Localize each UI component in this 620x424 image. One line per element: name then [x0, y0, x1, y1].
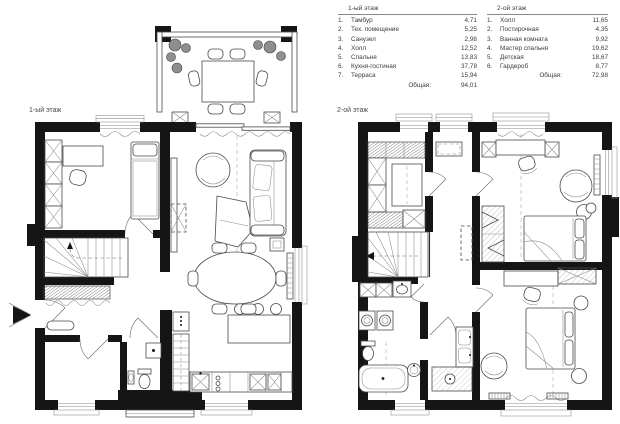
master-bedroom — [482, 134, 600, 262]
legend-row: 7.Терраса15,94 — [338, 71, 477, 80]
laundry-sink — [393, 281, 411, 297]
wall-sink — [128, 371, 134, 384]
bedroom-window — [96, 116, 144, 129]
kitchen-window — [201, 404, 252, 416]
kitchen — [173, 304, 292, 393]
terrace — [155, 26, 297, 123]
desk-chair — [517, 155, 537, 176]
curtain — [100, 132, 140, 137]
desk-console — [496, 140, 545, 155]
armchair — [481, 353, 507, 379]
radiator — [287, 253, 293, 299]
legend-row: 6.Гардероб8,77 — [487, 62, 608, 71]
terrace-column — [172, 112, 280, 123]
bath-window — [391, 404, 429, 416]
wardrobe-room — [368, 142, 425, 228]
sofa — [250, 150, 286, 236]
terrace-dining-table — [188, 49, 269, 114]
legend-row: 5.Детская18,67 — [487, 53, 608, 62]
kitchen-island — [228, 315, 290, 343]
living-window-right — [295, 246, 307, 304]
bench — [47, 321, 74, 330]
curtain — [200, 132, 290, 137]
bedroom-1f — [45, 140, 159, 228]
window — [436, 114, 472, 129]
armchair — [196, 153, 230, 187]
chimney — [612, 197, 619, 237]
bed-double — [524, 216, 586, 261]
wardrobe-hanging — [482, 206, 504, 262]
hall-2f — [436, 142, 472, 260]
legend-total: Общая:94,01 — [338, 81, 477, 90]
tambur-window — [54, 404, 99, 416]
legend-row: 1.Холл11,65 — [487, 16, 608, 25]
legend-floor1: 1-ый этаж 1.Тамбур4,71 2.Тех. помещение5… — [338, 4, 477, 90]
side-table — [270, 238, 284, 251]
armchair — [560, 170, 592, 202]
curtain — [506, 396, 566, 401]
legend-row: 3.Ванная комната9,92 — [487, 35, 608, 44]
terrace-railing — [157, 32, 297, 37]
desk — [504, 271, 558, 286]
toilet — [138, 369, 151, 389]
bed-single — [526, 308, 575, 369]
hanging-rail — [368, 212, 403, 228]
legend-row: 3.Санузел2,98 — [338, 35, 477, 44]
wardrobe — [558, 268, 596, 284]
legend-row: 6.Кухня-гостиная37,78 — [338, 62, 477, 71]
legend-row: 4.Холл12,52 — [338, 44, 477, 53]
radiator — [594, 155, 600, 195]
floor2-label: 2-ой этаж — [337, 107, 368, 114]
floor1-plan — [9, 26, 307, 417]
legend-title: 2-ой этаж — [497, 4, 608, 13]
kitchen-counter — [190, 372, 292, 392]
double-vanity — [456, 327, 473, 367]
shower — [432, 367, 472, 391]
toilet — [361, 341, 375, 361]
pantry-cabinet — [173, 334, 189, 391]
desk-chair — [69, 168, 88, 186]
legend-row: 2.Тех. помещение5,25 — [338, 25, 477, 34]
desk-chair — [522, 286, 542, 306]
entry-arrow-icon — [9, 303, 31, 327]
dryer-machine — [377, 311, 393, 330]
curtain — [498, 132, 543, 137]
legend-row: 4.Мастер спальня19,62 — [487, 44, 608, 53]
legend-title: 1-ый этаж — [348, 4, 477, 13]
legend-total: Общая:72,98 — [487, 71, 608, 80]
floorplan-sheet: 1-ый этаж 2-ой этаж 1-ый этаж 1.Тамбур4,… — [0, 0, 620, 424]
bed-single — [131, 142, 159, 219]
pouf — [574, 296, 588, 310]
living-dining — [171, 136, 293, 314]
terrace-sliding-door — [196, 124, 290, 131]
staircase-2f — [366, 232, 430, 277]
dining-table — [188, 243, 286, 314]
pouf — [572, 369, 587, 384]
chimney — [27, 224, 35, 246]
linen-closet — [461, 226, 472, 260]
terrace-railing — [292, 32, 297, 112]
staircase-1f — [44, 238, 128, 277]
legend-rule — [487, 14, 608, 15]
kids-room — [481, 268, 596, 399]
legend-row: 1.Тамбур4,71 — [338, 16, 477, 25]
kids-window — [501, 404, 571, 417]
coat-rack — [44, 286, 110, 306]
master-window — [493, 113, 549, 129]
hanging-rail — [368, 142, 425, 158]
legend-floor2: 2-ой этаж 1.Холл11,65 2.Постирочная4,35 … — [487, 4, 608, 81]
tech-room-wc — [128, 343, 161, 389]
floor1-label: 1-ый этаж — [29, 107, 61, 114]
round-basin — [408, 364, 421, 377]
coffee-table — [215, 196, 253, 247]
shelf-unit — [368, 158, 386, 212]
window — [396, 114, 432, 129]
legend-rule — [338, 14, 477, 15]
master-side-window — [606, 147, 618, 198]
bathroom — [359, 327, 473, 396]
floor2-plan — [352, 113, 619, 416]
washing-machine — [359, 311, 375, 330]
bathtub — [359, 365, 408, 392]
desk — [63, 146, 103, 166]
wardrobe — [45, 140, 62, 228]
chimney — [352, 236, 358, 282]
laundry-cabinet — [360, 283, 392, 297]
legend-row: 2.Постирочная4,35 — [487, 25, 608, 34]
tv-console — [171, 158, 177, 252]
legend-row: 5.Спальня13,83 — [338, 53, 477, 62]
terrace-railing — [157, 32, 162, 112]
nightstand — [586, 203, 596, 213]
